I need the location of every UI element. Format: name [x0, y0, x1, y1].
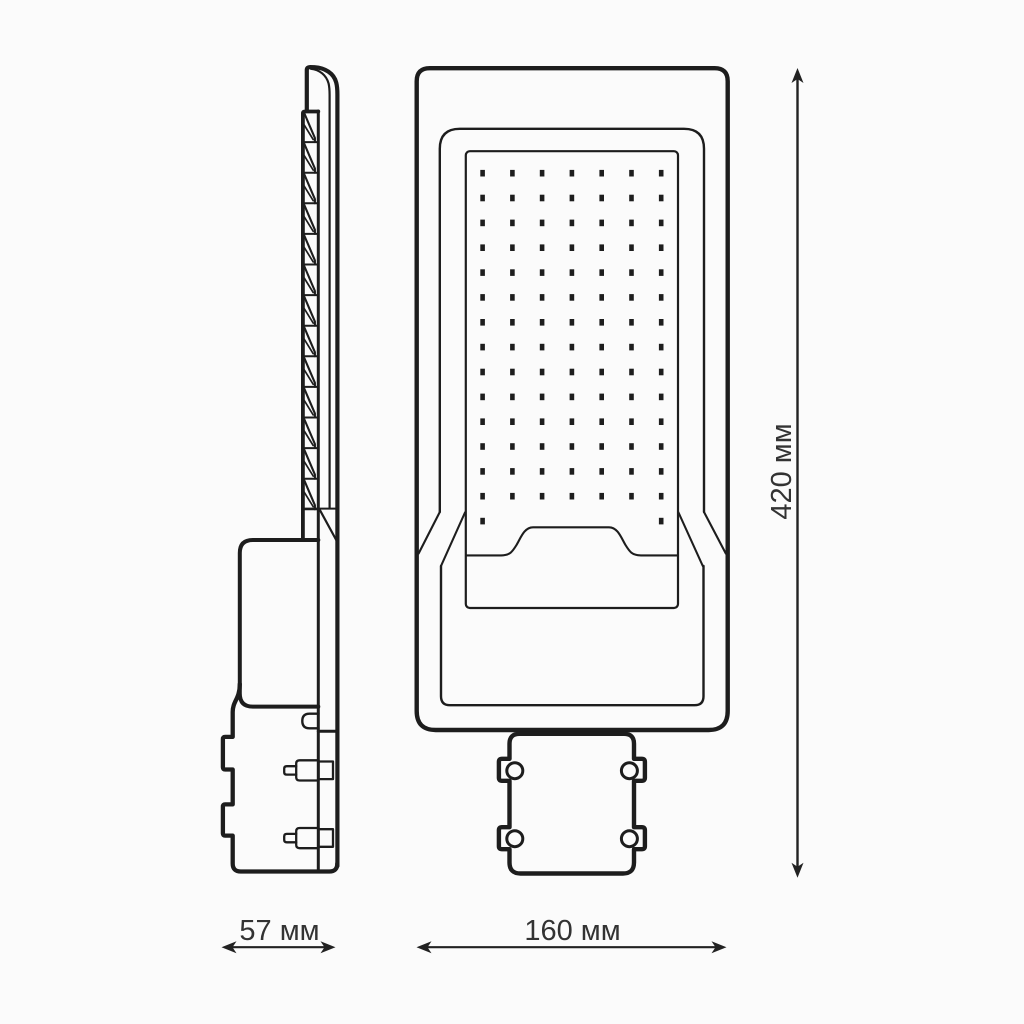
svg-text:57 мм: 57 мм	[239, 915, 319, 947]
svg-text:160 мм: 160 мм	[524, 915, 620, 947]
svg-text:420 мм: 420 мм	[766, 423, 798, 519]
